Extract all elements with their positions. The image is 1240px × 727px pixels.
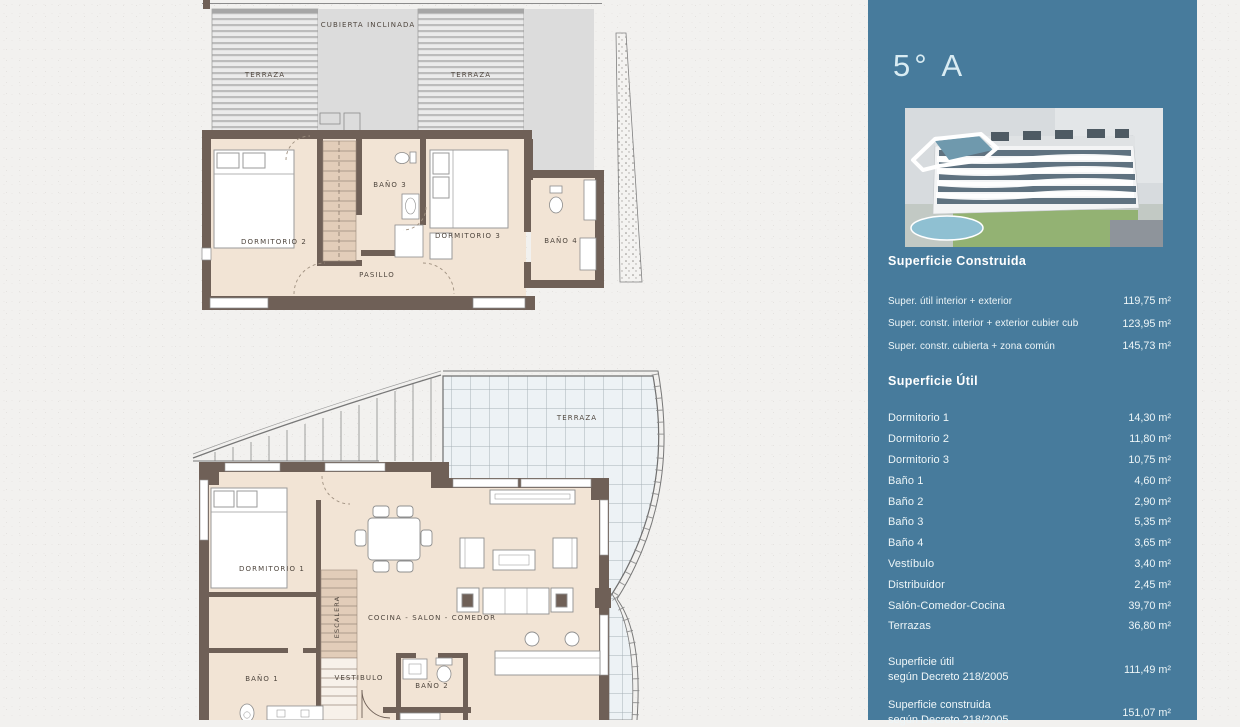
summary-util-decreto: Superficie útil según Decreto 218/2005 1… bbox=[888, 655, 1171, 684]
row-label: Super. constr. cubierta + zona común bbox=[888, 341, 1055, 352]
stairs-icon bbox=[323, 141, 356, 261]
info-panel: 5° A bbox=[868, 0, 1197, 720]
row-label: Vestíbulo bbox=[888, 558, 934, 570]
row-value: 3,40 m² bbox=[1134, 558, 1171, 570]
row-value: 2,90 m² bbox=[1134, 496, 1171, 508]
row-label: Dormitorio 3 bbox=[888, 454, 949, 466]
upper-floor-plan: CUBIERTA INCLINADA TERRAZA TERRAZA DORMI… bbox=[190, 0, 645, 316]
room-label-bano2: BAÑO 2 bbox=[415, 681, 449, 690]
room-label-vestibulo: VESTIBULO bbox=[335, 674, 384, 682]
row-value: 39,70 m² bbox=[1128, 600, 1171, 612]
room-label-dormitorio3: DORMITORIO 3 bbox=[435, 232, 501, 240]
building-render-image bbox=[905, 108, 1163, 247]
room-label-bano3: BAÑO 3 bbox=[373, 180, 407, 189]
row-label: Baño 1 bbox=[888, 475, 923, 487]
table-row: Dormitorio 2 11,80 m² bbox=[888, 429, 1171, 450]
section-heading-util: Superficie Útil bbox=[888, 374, 978, 388]
room-label-pasillo: PASILLO bbox=[359, 271, 395, 279]
table-row: Dormitorio 3 10,75 m² bbox=[888, 450, 1171, 471]
util-table: Dormitorio 1 14,30 m² Dormitorio 2 11,80… bbox=[888, 408, 1171, 637]
bed-icon bbox=[211, 488, 287, 588]
summary-label: Superficie útil según Decreto 218/2005 bbox=[888, 655, 1008, 684]
table-row: Baño 3 5,35 m² bbox=[888, 512, 1171, 533]
room-label-terraza: TERRAZA bbox=[556, 414, 597, 422]
row-value: 14,30 m² bbox=[1128, 412, 1171, 424]
room-label-bano1: BAÑO 1 bbox=[245, 674, 279, 683]
table-row: Salón-Comedor-Cocina 39,70 m² bbox=[888, 595, 1171, 616]
summary-value: 111,49 m² bbox=[1124, 664, 1171, 676]
summary-line1: Superficie construida bbox=[888, 698, 1008, 713]
row-value: 36,80 m² bbox=[1128, 620, 1171, 632]
table-row: Baño 4 3,65 m² bbox=[888, 533, 1171, 554]
row-value: 2,45 m² bbox=[1134, 579, 1171, 591]
row-label: Terrazas bbox=[888, 620, 931, 632]
table-row: Baño 1 4,60 m² bbox=[888, 470, 1171, 491]
row-label: Super. constr. interior + exterior cubie… bbox=[888, 318, 1078, 329]
row-value: 123,95 m² bbox=[1122, 318, 1171, 330]
summary-label: Superficie construida según Decreto 218/… bbox=[888, 698, 1008, 727]
row-label: Baño 2 bbox=[888, 496, 923, 508]
table-row: Dormitorio 1 14,30 m² bbox=[888, 408, 1171, 429]
table-row: Terrazas 36,80 m² bbox=[888, 616, 1171, 637]
room-label-escalera: ESCALERA bbox=[333, 596, 341, 638]
room-label-terraza-right: TERRAZA bbox=[450, 71, 491, 79]
row-value: 11,80 m² bbox=[1129, 433, 1171, 445]
table-row: Super. constr. interior + exterior cubie… bbox=[888, 313, 1171, 336]
table-row: Super. constr. cubierta + zona común 145… bbox=[888, 335, 1171, 358]
summary-line2: según Decreto 218/2005 bbox=[888, 670, 1008, 685]
row-label: Dormitorio 1 bbox=[888, 412, 949, 424]
section-heading-construida: Superficie Construida bbox=[888, 254, 1026, 268]
room-label-terraza-left: TERRAZA bbox=[244, 71, 285, 79]
row-value: 4,60 m² bbox=[1134, 475, 1171, 487]
room-label-cubierta: CUBIERTA INCLINADA bbox=[321, 21, 415, 29]
unit-title: 5° A bbox=[893, 48, 966, 84]
row-label: Salón-Comedor-Cocina bbox=[888, 600, 1005, 612]
page-background: CUBIERTA INCLINADA TERRAZA TERRAZA DORMI… bbox=[0, 0, 1240, 720]
table-row: Vestíbulo 3,40 m² bbox=[888, 554, 1171, 575]
lower-floor-plan: TERRAZA DORMITORIO 1 ESCALERA COCINA - S… bbox=[185, 370, 685, 720]
row-label: Dormitorio 2 bbox=[888, 433, 949, 445]
table-row: Distribuidor 2,45 m² bbox=[888, 574, 1171, 595]
table-row: Super. útil interior + exterior 119,75 m… bbox=[888, 290, 1171, 313]
room-label-dormitorio1: DORMITORIO 1 bbox=[239, 565, 305, 573]
bed-icon bbox=[214, 150, 294, 248]
row-label: Baño 4 bbox=[888, 537, 923, 549]
row-label: Distribuidor bbox=[888, 579, 945, 591]
row-value: 145,73 m² bbox=[1122, 340, 1171, 352]
row-value: 3,65 m² bbox=[1134, 537, 1171, 549]
summary-line1: Superficie útil bbox=[888, 655, 1008, 670]
row-label: Super. útil interior + exterior bbox=[888, 296, 1012, 307]
pool bbox=[911, 216, 983, 240]
row-value: 10,75 m² bbox=[1128, 454, 1171, 466]
summary-construida-decreto: Superficie construida según Decreto 218/… bbox=[888, 698, 1171, 727]
summary-value: 151,07 m² bbox=[1122, 707, 1171, 719]
row-value: 5,35 m² bbox=[1134, 516, 1171, 528]
room-label-bano4: BAÑO 4 bbox=[544, 236, 578, 245]
room-label-cocina: COCINA - SALON - COMEDOR bbox=[368, 614, 496, 622]
plot-boundary bbox=[202, 0, 602, 9]
row-value: 119,75 m² bbox=[1123, 295, 1171, 307]
table-row: Baño 2 2,90 m² bbox=[888, 491, 1171, 512]
room-label-dormitorio2: DORMITORIO 2 bbox=[241, 238, 307, 246]
construida-table: Super. útil interior + exterior 119,75 m… bbox=[888, 290, 1171, 358]
stairs-icon bbox=[321, 570, 357, 720]
site-hatch-strip bbox=[616, 33, 642, 282]
curved-pergola-edge bbox=[193, 371, 441, 461]
row-label: Baño 3 bbox=[888, 516, 923, 528]
